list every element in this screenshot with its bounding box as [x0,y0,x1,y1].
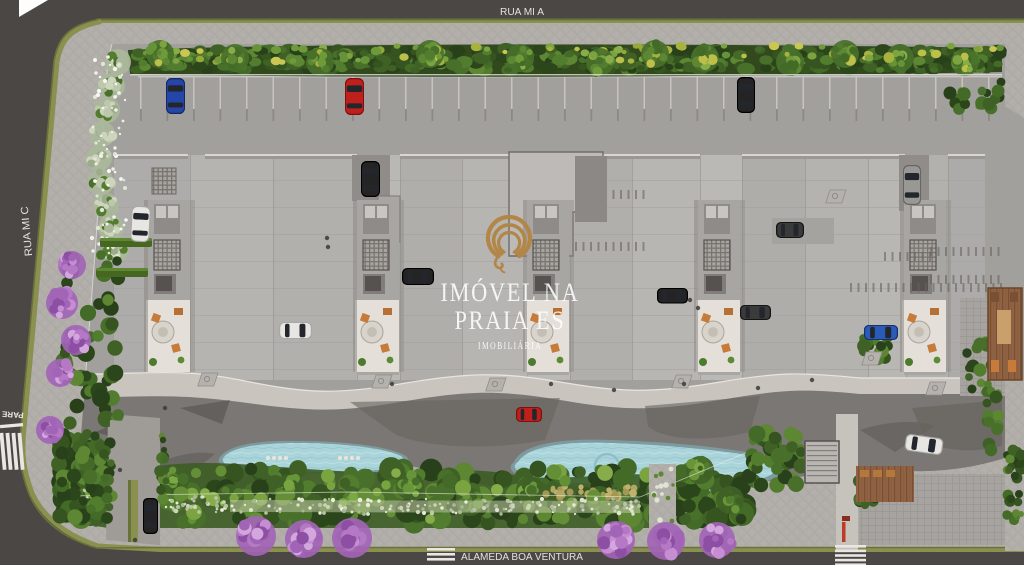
svg-text:PARE: PARE [1,409,24,420]
svg-text:IMOBILIÁRIA: IMOBILIÁRIA [478,340,542,352]
svg-text:ALAMEDA BOA VENTURA: ALAMEDA BOA VENTURA [461,551,583,563]
svg-text:RUA MI A: RUA MI A [500,6,544,18]
svg-text:IMÓVEL NA: IMÓVEL NA [441,278,580,307]
svg-text:PRAIA ES: PRAIA ES [455,306,566,335]
